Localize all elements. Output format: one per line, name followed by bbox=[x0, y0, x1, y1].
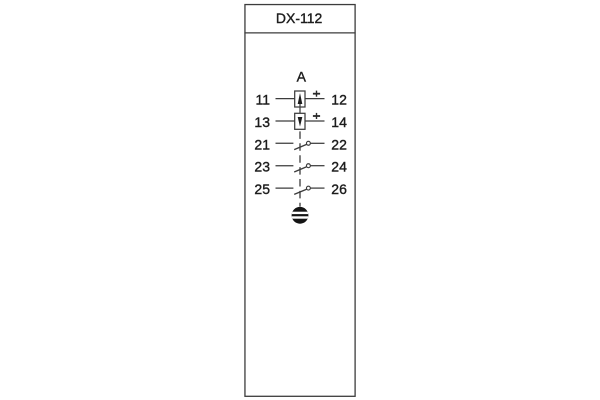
svg-text:22: 22 bbox=[331, 136, 347, 152]
svg-text:DX-112: DX-112 bbox=[276, 10, 323, 26]
svg-text:26: 26 bbox=[331, 181, 347, 197]
svg-text:24: 24 bbox=[331, 159, 347, 175]
svg-text:23: 23 bbox=[254, 159, 270, 175]
svg-text:11: 11 bbox=[255, 92, 270, 108]
svg-text:13: 13 bbox=[254, 114, 270, 130]
svg-text:21: 21 bbox=[254, 136, 270, 152]
svg-text:A: A bbox=[297, 69, 307, 85]
svg-text:12: 12 bbox=[331, 92, 347, 108]
svg-text:14: 14 bbox=[331, 114, 347, 130]
svg-text:25: 25 bbox=[254, 181, 270, 197]
